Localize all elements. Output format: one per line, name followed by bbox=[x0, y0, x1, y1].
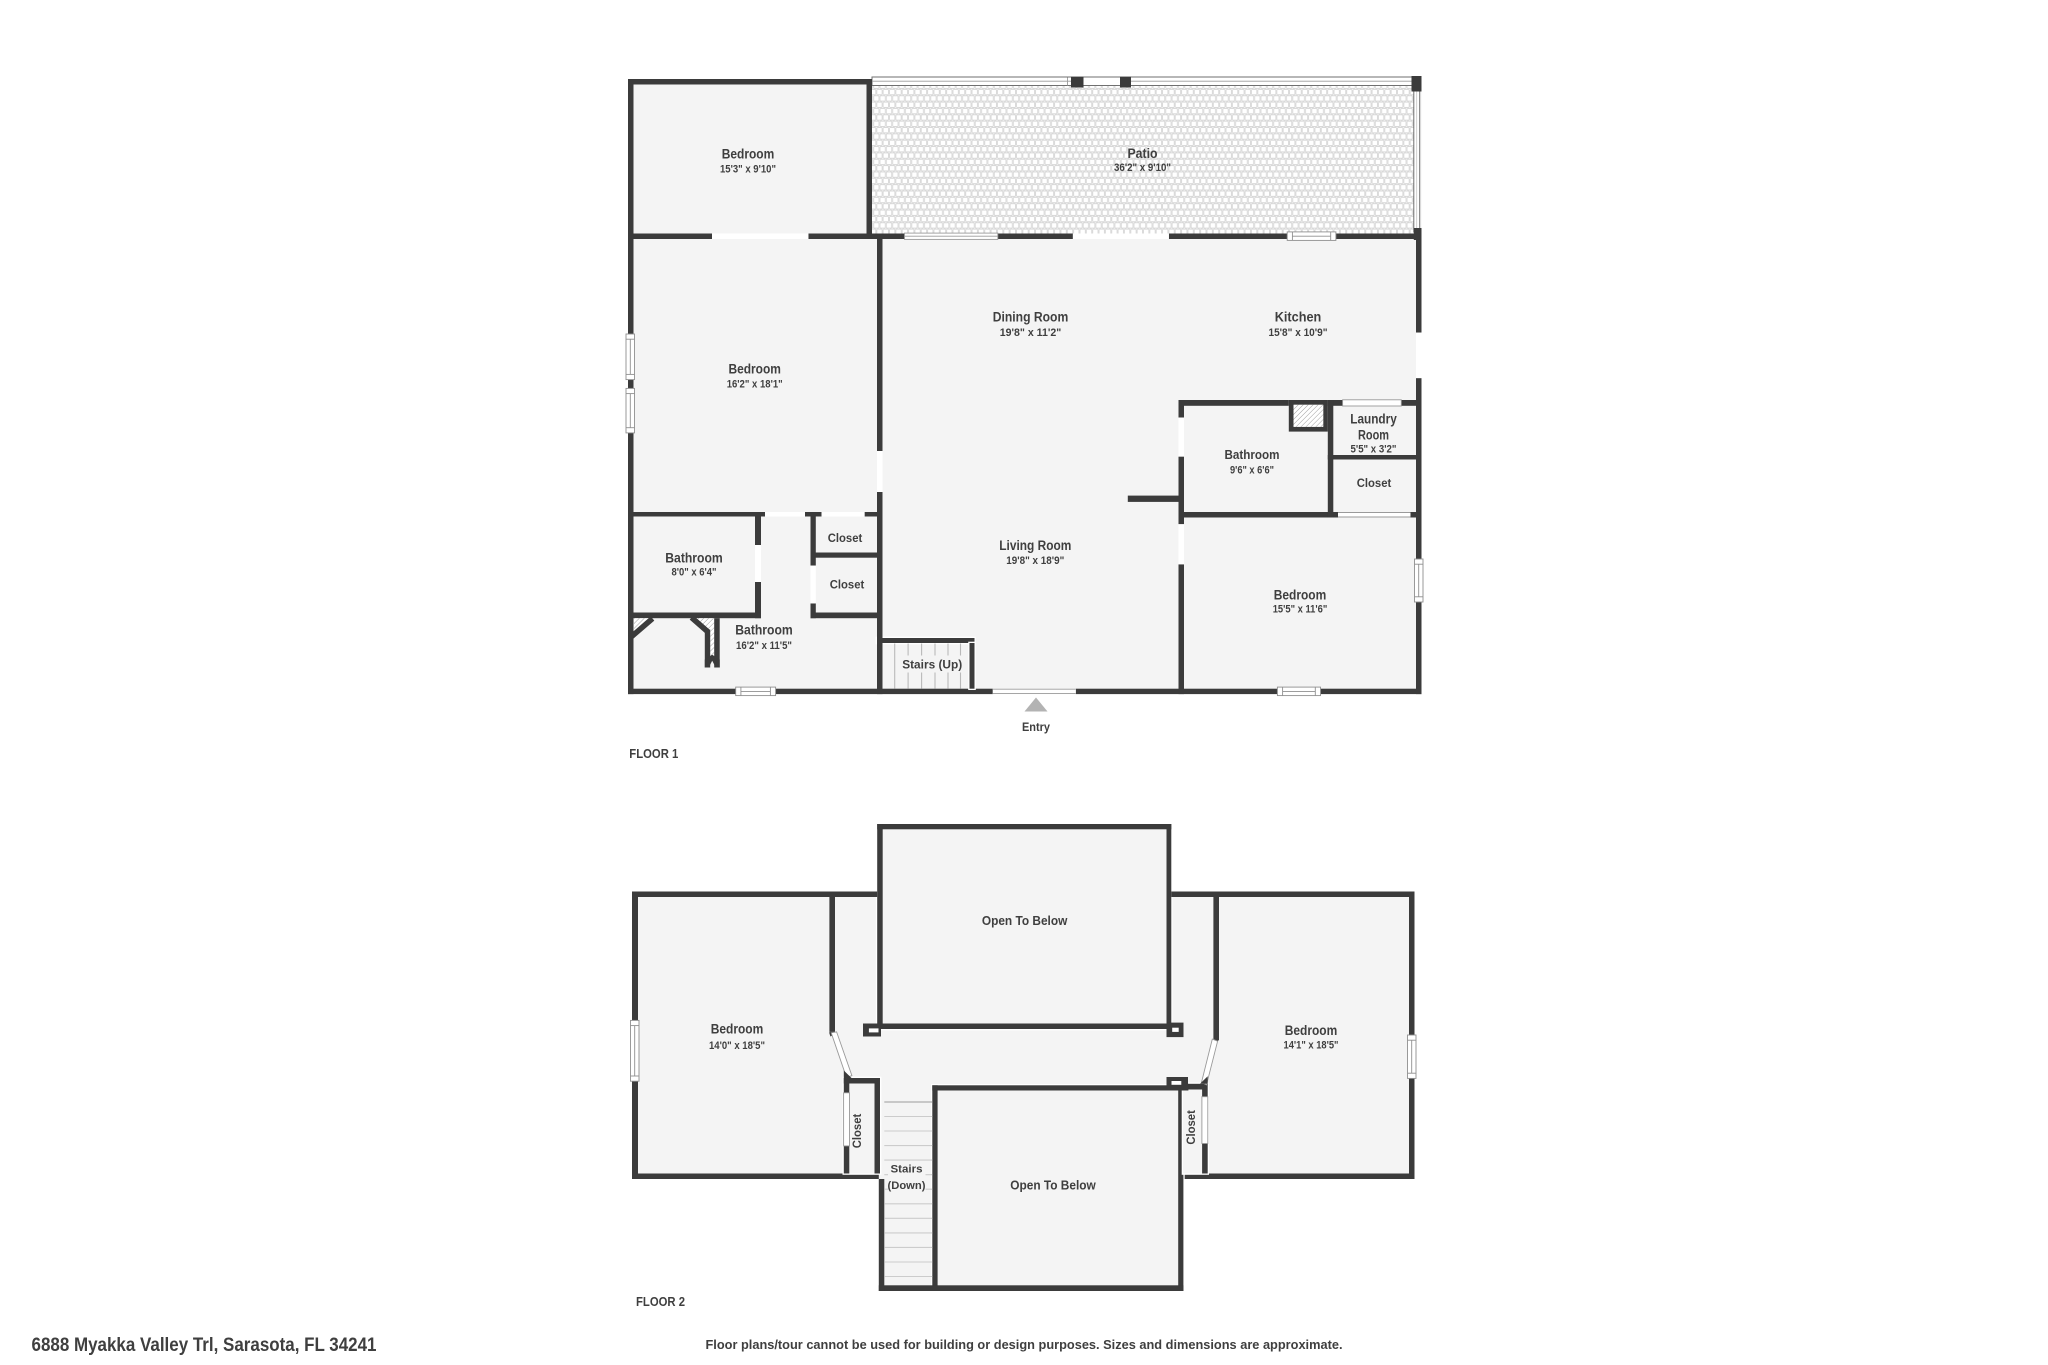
svg-text:Closet: Closet bbox=[852, 1114, 864, 1149]
svg-text:FLOOR 2: FLOOR 2 bbox=[636, 1295, 685, 1309]
svg-text:FLOOR 1: FLOOR 1 bbox=[629, 747, 678, 761]
svg-text:15'8" x 10'9": 15'8" x 10'9" bbox=[1269, 327, 1328, 339]
svg-text:Bedroom: Bedroom bbox=[1274, 588, 1327, 603]
svg-text:15'5" x 11'6": 15'5" x 11'6" bbox=[1273, 604, 1328, 616]
svg-text:Bedroom: Bedroom bbox=[711, 1022, 764, 1037]
svg-text:19'8" x 18'9": 19'8" x 18'9" bbox=[1006, 555, 1064, 567]
svg-text:14'0" x 18'5": 14'0" x 18'5" bbox=[709, 1040, 765, 1052]
svg-text:Closet: Closet bbox=[1357, 478, 1392, 490]
svg-text:Stairs (Up): Stairs (Up) bbox=[902, 658, 962, 672]
svg-text:Closet: Closet bbox=[830, 580, 865, 592]
svg-text:Closet: Closet bbox=[828, 533, 863, 545]
svg-text:Closet: Closet bbox=[1186, 1110, 1198, 1145]
svg-text:8'0" x 6'4": 8'0" x 6'4" bbox=[672, 567, 717, 579]
svg-text:Bathroom: Bathroom bbox=[735, 623, 793, 638]
svg-text:14'1" x 18'5": 14'1" x 18'5" bbox=[1284, 1040, 1339, 1052]
svg-text:Entry: Entry bbox=[1022, 722, 1051, 734]
svg-text:9'6" x 6'6": 9'6" x 6'6" bbox=[1230, 465, 1274, 477]
svg-text:Living Room: Living Room bbox=[999, 538, 1071, 553]
svg-text:16'2" x 18'1": 16'2" x 18'1" bbox=[727, 379, 783, 391]
svg-text:Laundry: Laundry bbox=[1350, 411, 1397, 426]
svg-text:Open To Below: Open To Below bbox=[1010, 1178, 1096, 1193]
svg-text:19'8" x 11'2": 19'8" x 11'2" bbox=[1000, 327, 1062, 339]
svg-text:Bedroom: Bedroom bbox=[728, 362, 781, 377]
svg-text:Patio: Patio bbox=[1128, 146, 1158, 161]
svg-text:Floor plans/tour cannot be use: Floor plans/tour cannot be used for buil… bbox=[706, 1337, 1343, 1352]
svg-text:Kitchen: Kitchen bbox=[1275, 310, 1322, 325]
svg-text:(Down): (Down) bbox=[888, 1180, 926, 1192]
svg-text:6888 Myakka Valley Trl, Saraso: 6888 Myakka Valley Trl, Sarasota, FL 342… bbox=[32, 1335, 377, 1356]
svg-text:15'3" x 9'10": 15'3" x 9'10" bbox=[720, 164, 776, 176]
svg-text:Bathroom: Bathroom bbox=[1225, 447, 1280, 462]
svg-text:5'5" x 3'2": 5'5" x 3'2" bbox=[1351, 443, 1397, 455]
svg-text:Bedroom: Bedroom bbox=[722, 146, 775, 161]
svg-text:Bedroom: Bedroom bbox=[1285, 1023, 1338, 1038]
svg-text:Bathroom: Bathroom bbox=[665, 550, 723, 565]
svg-text:16'2" x 11'5": 16'2" x 11'5" bbox=[736, 640, 792, 652]
svg-text:Dining Room: Dining Room bbox=[993, 310, 1069, 325]
svg-text:Room: Room bbox=[1358, 428, 1389, 443]
svg-text:Open To Below: Open To Below bbox=[982, 913, 1068, 928]
svg-text:Stairs: Stairs bbox=[891, 1164, 923, 1176]
svg-text:36'2" x 9'10": 36'2" x 9'10" bbox=[1114, 162, 1171, 174]
